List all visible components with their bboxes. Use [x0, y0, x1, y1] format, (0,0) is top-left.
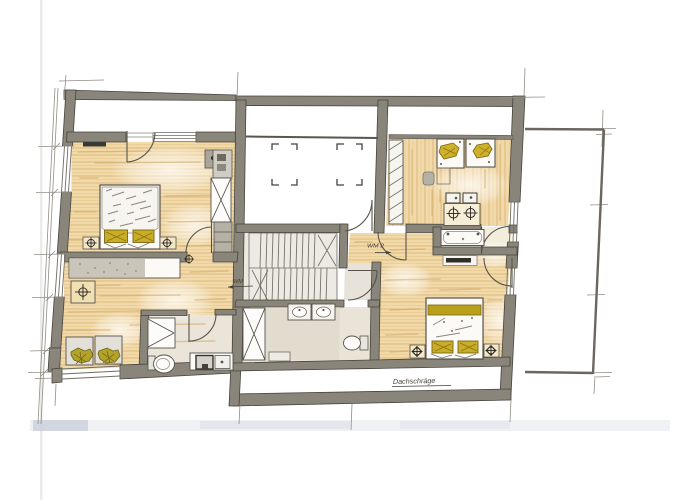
svg-text:WM 2: WM 2: [367, 244, 385, 250]
svg-text:WM: WM: [233, 279, 243, 285]
svg-text:Dachschräge: Dachschräge: [393, 376, 436, 386]
